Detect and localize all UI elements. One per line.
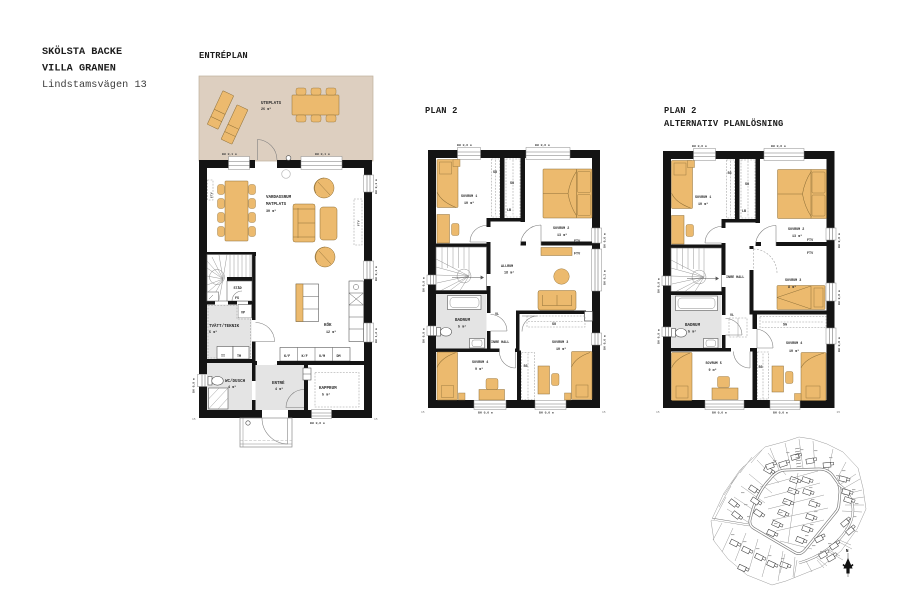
- svg-text:KÖK: KÖK: [324, 323, 332, 328]
- svg-text:15: 15: [374, 418, 378, 421]
- svg-text:DM: DM: [337, 355, 341, 359]
- svg-text:FS: FS: [235, 297, 239, 301]
- svg-text:BH 0,9 m: BH 0,9 m: [422, 328, 426, 343]
- svg-text:LB: LB: [742, 210, 746, 214]
- svg-text:SG: SG: [493, 171, 497, 175]
- svg-text:13 m²: 13 m²: [557, 233, 567, 238]
- svg-text:FTV: FTV: [210, 192, 214, 198]
- svg-text:BH 0,6 m: BH 0,6 m: [478, 411, 493, 415]
- svg-text:4 m²: 4 m²: [228, 385, 236, 390]
- svg-text:BH 0,6 m: BH 0,6 m: [692, 144, 707, 148]
- svg-text:BH 0,6 m: BH 0,6 m: [712, 411, 727, 415]
- svg-text:TT: TT: [221, 355, 225, 359]
- svg-text:15: 15: [192, 418, 196, 421]
- svg-text:SOVRUM 5: SOVRUM 5: [706, 362, 722, 366]
- svg-text:VL: VL: [495, 313, 499, 317]
- svg-text:BH 0,1 m: BH 0,1 m: [374, 179, 378, 194]
- svg-text:ALLRUM: ALLRUM: [501, 265, 513, 269]
- svg-text:SG: SG: [728, 172, 732, 176]
- svg-text:15: 15: [656, 411, 660, 414]
- svg-text:N: N: [846, 548, 849, 554]
- svg-text:U/M: U/M: [319, 354, 325, 359]
- svg-text:TM: TM: [237, 355, 241, 359]
- svg-text:13 m²: 13 m²: [792, 234, 802, 239]
- svg-text:5 m²: 5 m²: [458, 325, 466, 330]
- svg-text:SG: SG: [510, 182, 514, 186]
- svg-text:ENTRÉPLAN: ENTRÉPLAN: [199, 50, 248, 61]
- svg-text:BH 0,6 m: BH 0,6 m: [837, 337, 841, 352]
- svg-text:BH 0,6 m: BH 0,6 m: [457, 143, 472, 147]
- svg-text:BH 0,6 m: BH 0,6 m: [535, 143, 550, 147]
- svg-text:K/F: K/F: [284, 354, 290, 359]
- svg-text:SOVRUM 4: SOVRUM 4: [472, 361, 488, 365]
- svg-text:10 m²: 10 m²: [556, 347, 566, 352]
- svg-text:5 m²: 5 m²: [688, 330, 696, 335]
- svg-text:KAPPRUM: KAPPRUM: [319, 387, 337, 391]
- svg-text:UTEPLATS: UTEPLATS: [261, 102, 282, 106]
- svg-text:BH 0,6 m: BH 0,6 m: [771, 144, 786, 148]
- svg-text:VARDAGSRUM: VARDAGSRUM: [266, 196, 292, 200]
- svg-text:PLAN 2: PLAN 2: [425, 106, 458, 116]
- svg-text:BH 0,1 m: BH 0,1 m: [374, 266, 378, 281]
- svg-text:BH 0,9 m: BH 0,9 m: [657, 329, 661, 344]
- svg-text:Lindstamsvägen 13: Lindstamsvägen 13: [42, 79, 147, 91]
- svg-text:SG: SG: [552, 323, 556, 327]
- svg-text:SOVRUM 3: SOVRUM 3: [785, 279, 801, 283]
- svg-text:BH 0,6 m: BH 0,6 m: [773, 411, 788, 415]
- svg-text:TVÄTT/TEKNIK: TVÄTT/TEKNIK: [209, 324, 240, 329]
- svg-text:LB: LB: [507, 209, 511, 213]
- svg-text:MATPLATS: MATPLATS: [266, 203, 287, 207]
- svg-text:BH 0,9 m: BH 0,9 m: [657, 278, 661, 293]
- svg-text:VP: VP: [241, 312, 245, 316]
- svg-text:WC/DUSCH: WC/DUSCH: [225, 379, 246, 384]
- svg-text:VILLA GRANEN: VILLA GRANEN: [42, 64, 116, 75]
- svg-text:BH 0,1 m: BH 0,1 m: [222, 152, 237, 156]
- svg-text:K/F: K/F: [302, 354, 308, 359]
- svg-text:BADRUM: BADRUM: [455, 319, 471, 323]
- svg-text:15: 15: [421, 411, 425, 414]
- svg-text:FTV: FTV: [574, 240, 581, 244]
- svg-text:BH 0,1 m: BH 0,1 m: [315, 152, 330, 156]
- svg-text:INRE HALL: INRE HALL: [491, 341, 509, 345]
- svg-text:10 m²: 10 m²: [789, 349, 799, 354]
- svg-text:BH 0,9 m: BH 0,9 m: [422, 277, 426, 292]
- svg-text:BADRUM: BADRUM: [685, 324, 701, 328]
- svg-text:BH 0,6 m: BH 0,6 m: [310, 421, 325, 425]
- svg-text:SG: SG: [759, 366, 763, 370]
- svg-text:STÄD: STÄD: [234, 286, 242, 291]
- svg-text:10 m²: 10 m²: [464, 201, 474, 206]
- svg-text:FTV: FTV: [574, 253, 581, 257]
- svg-text:ENTRÉ: ENTRÉ: [272, 381, 285, 386]
- svg-text:FTV: FTV: [807, 239, 814, 243]
- svg-text:18 m²: 18 m²: [504, 271, 514, 276]
- svg-text:INRE HALL: INRE HALL: [726, 276, 744, 280]
- svg-text:10 m²: 10 m²: [698, 202, 708, 207]
- svg-text:SOVRUM 2: SOVRUM 2: [788, 228, 804, 232]
- svg-text:PLAN 2: PLAN 2: [664, 106, 697, 116]
- svg-text:15: 15: [602, 411, 606, 414]
- svg-text:BH 0,6 m: BH 0,6 m: [837, 290, 841, 305]
- svg-text:BH 0,9 m: BH 0,9 m: [192, 378, 196, 393]
- svg-text:SOVRUM 2: SOVRUM 2: [553, 227, 569, 231]
- svg-text:SKÖLSTA BACKE: SKÖLSTA BACKE: [42, 45, 122, 58]
- svg-text:26 m²: 26 m²: [261, 107, 271, 112]
- svg-text:FTV: FTV: [807, 252, 814, 256]
- svg-text:SOVRUM 4: SOVRUM 4: [786, 342, 802, 346]
- svg-text:9 m²: 9 m²: [709, 368, 717, 373]
- svg-text:ALTERNATIV PLANLÖSNING: ALTERNATIV PLANLÖSNING: [664, 118, 783, 129]
- svg-text:BH 0,6 m: BH 0,6 m: [603, 335, 607, 350]
- svg-text:5 m²: 5 m²: [322, 393, 330, 398]
- svg-text:SOVRUM 1: SOVRUM 1: [461, 195, 477, 199]
- svg-text:BH 0,3 m: BH 0,3 m: [603, 270, 607, 285]
- svg-text:9 m²: 9 m²: [475, 367, 483, 372]
- svg-text:BH 1,2 m: BH 1,2 m: [374, 328, 378, 343]
- svg-text:BH 0,6 m: BH 0,6 m: [837, 233, 841, 248]
- svg-text:30 m²: 30 m²: [266, 209, 276, 214]
- svg-text:VL: VL: [730, 314, 734, 318]
- svg-text:BH 0,6 m: BH 0,6 m: [603, 233, 607, 248]
- svg-text:15: 15: [837, 411, 841, 414]
- svg-text:5 m²: 5 m²: [209, 330, 217, 335]
- svg-text:8 m²: 8 m²: [788, 285, 796, 290]
- svg-text:12 m²: 12 m²: [326, 330, 336, 335]
- svg-text:SOVRUM 3: SOVRUM 3: [552, 341, 568, 345]
- svg-text:SG: SG: [524, 365, 528, 369]
- svg-text:FTV: FTV: [357, 220, 361, 226]
- svg-text:4 m²: 4 m²: [275, 387, 283, 392]
- svg-text:SG: SG: [783, 324, 787, 328]
- svg-text:BH 0,6 m: BH 0,6 m: [539, 411, 554, 415]
- svg-text:SOVRUM 1: SOVRUM 1: [695, 196, 711, 200]
- svg-text:SG: SG: [745, 183, 749, 187]
